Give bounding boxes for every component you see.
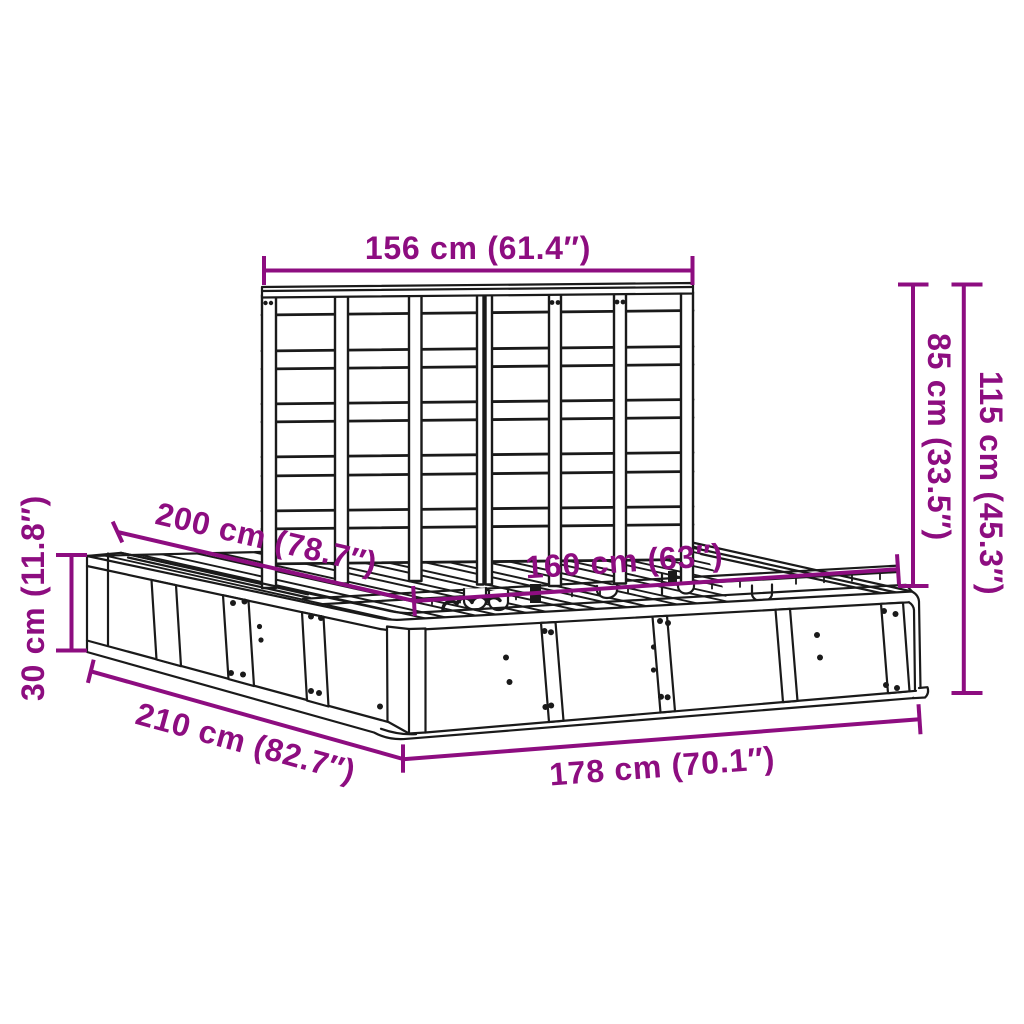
svg-text:156 cm (61.4″): 156 cm (61.4″) [365,230,591,266]
svg-text:115 cm (45.3″): 115 cm (45.3″) [973,371,1009,595]
svg-text:85 cm (33.5″): 85 cm (33.5″) [921,333,957,541]
svg-text:30 cm (11.8″): 30 cm (11.8″) [15,495,51,701]
